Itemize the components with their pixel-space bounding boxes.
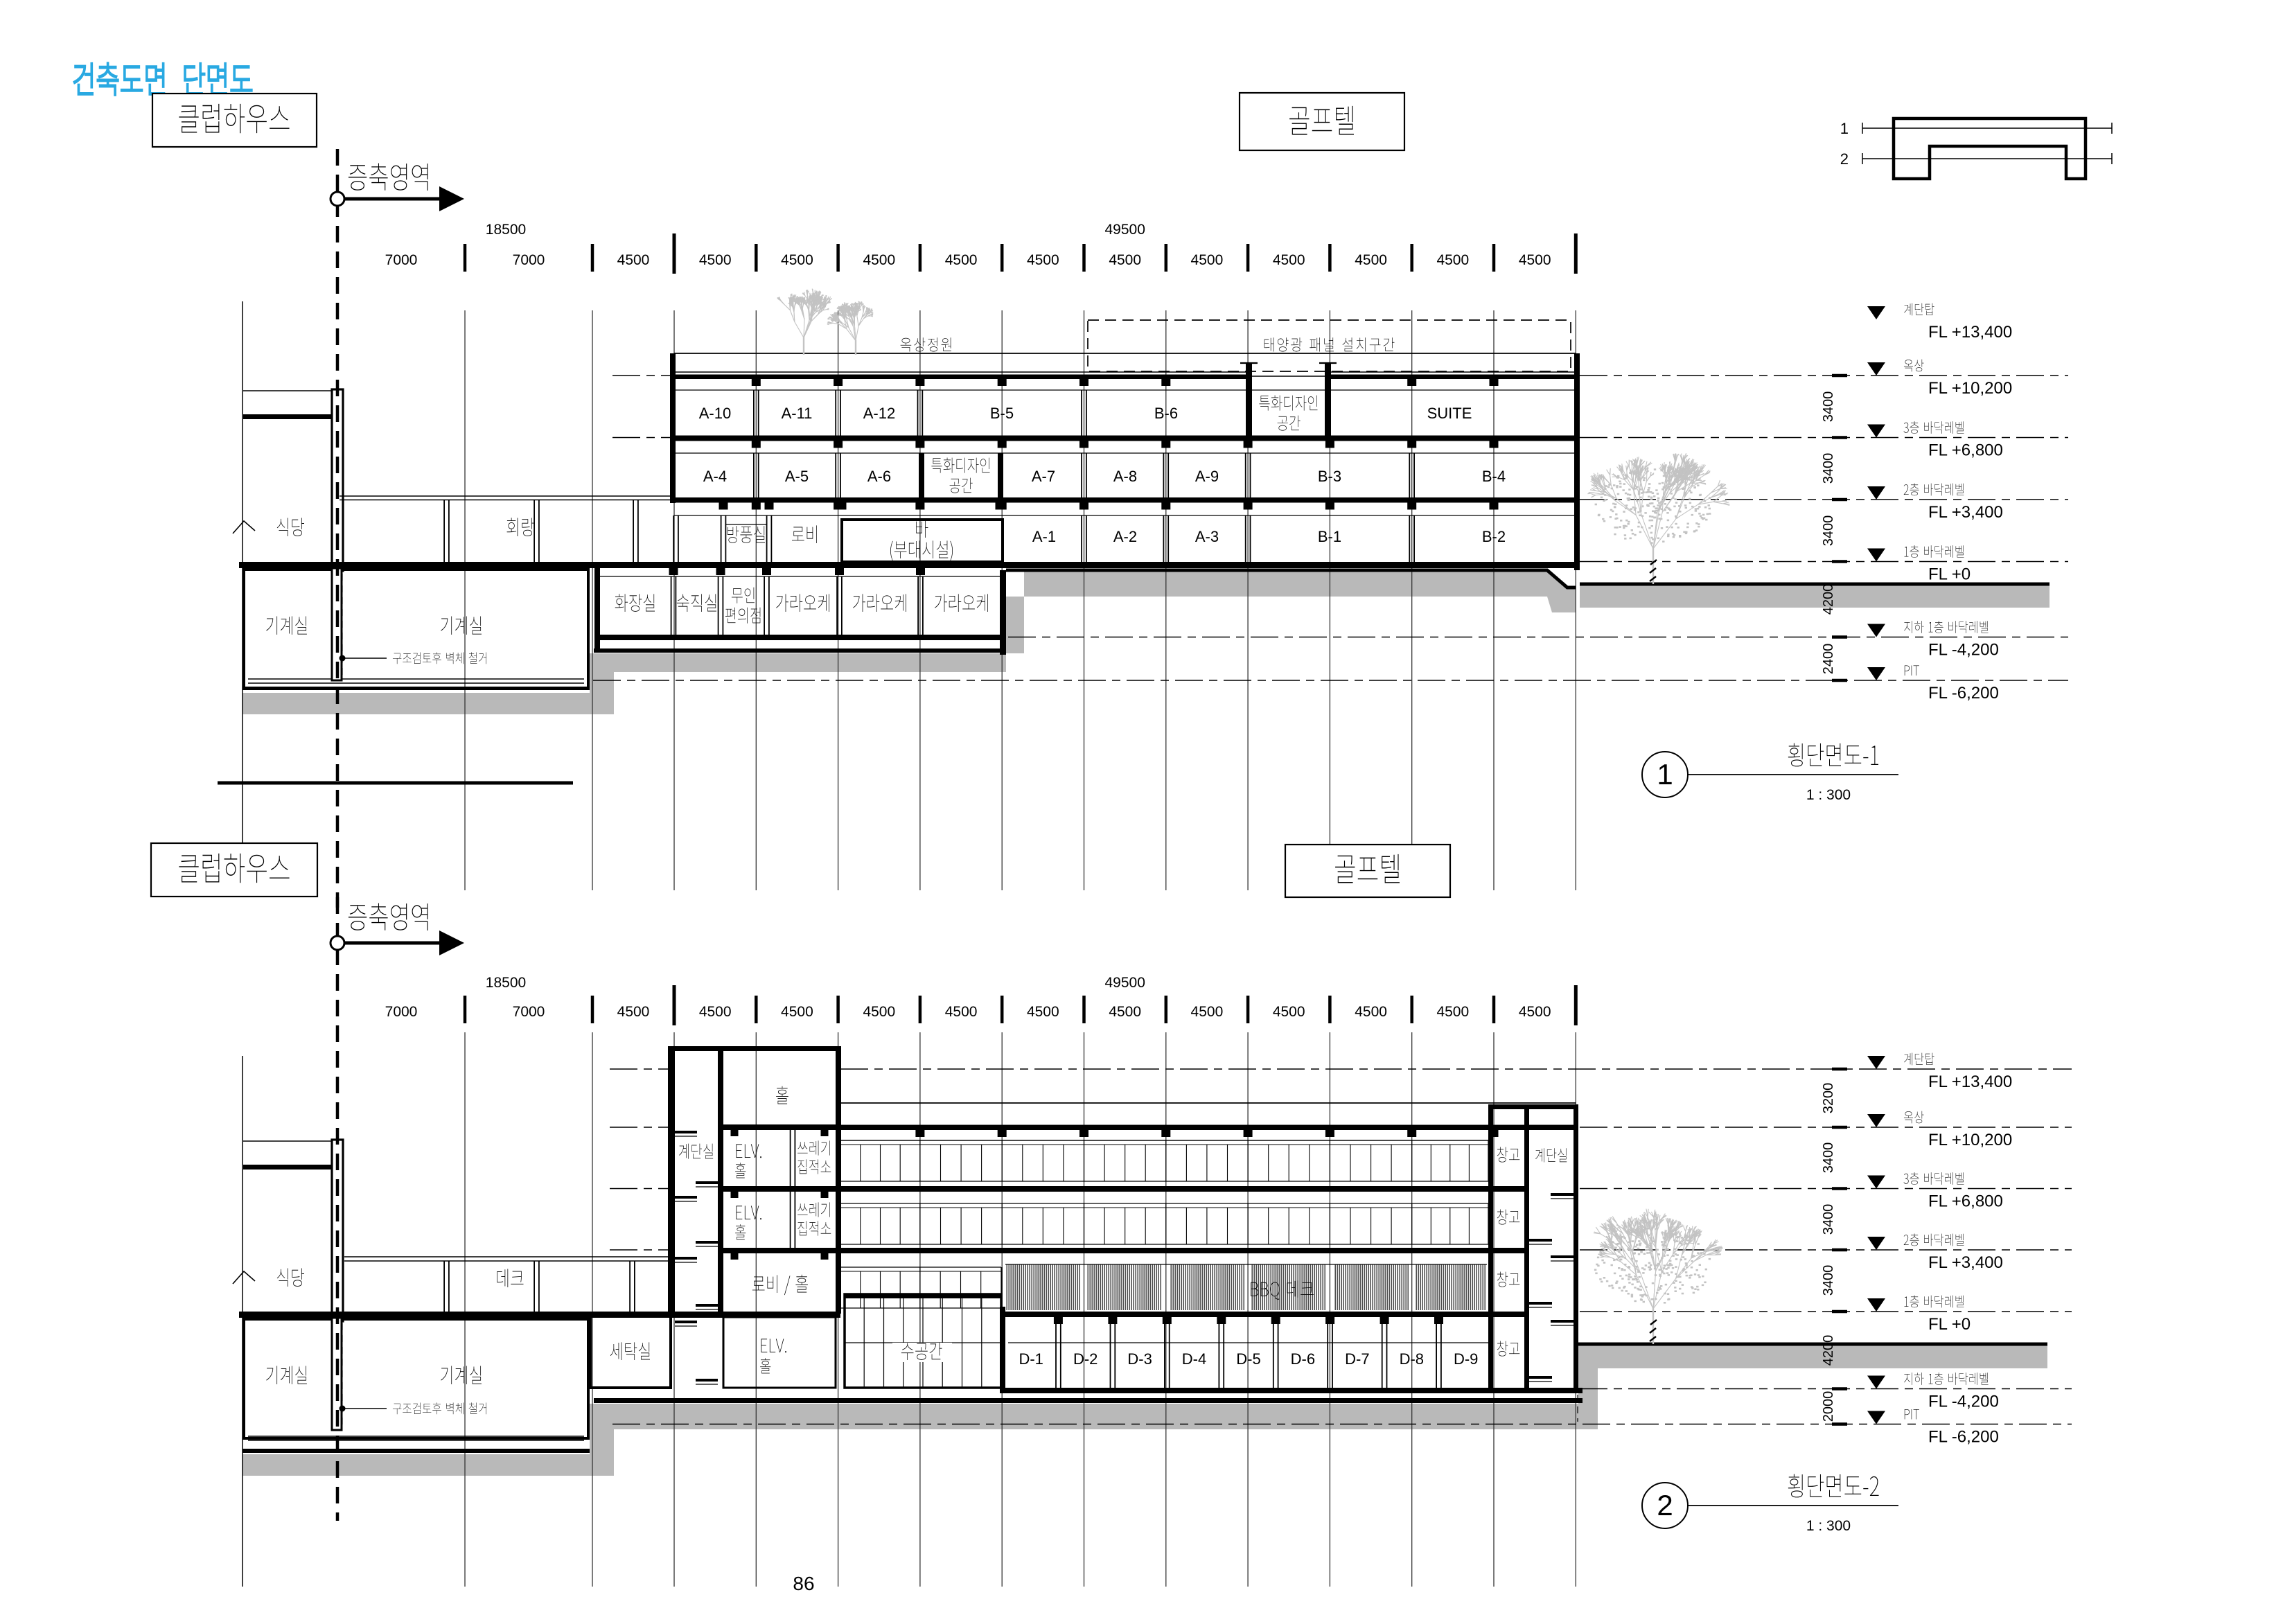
svg-text:FL -4,200: FL -4,200 [1928,1393,1999,1411]
svg-text:2000: 2000 [1821,1391,1836,1422]
svg-text:2: 2 [1657,1489,1673,1521]
svg-text:FL +0: FL +0 [1928,1315,1971,1334]
svg-text:4500: 4500 [699,1004,732,1020]
svg-text:FL -6,200: FL -6,200 [1928,684,1999,703]
svg-text:FL +6,800: FL +6,800 [1928,441,2003,460]
svg-text:4500: 4500 [1027,1004,1059,1020]
svg-text:B-5: B-5 [990,405,1014,422]
svg-text:7000: 7000 [513,1004,545,1020]
svg-text:4500: 4500 [1436,252,1469,268]
svg-text:1: 1 [1840,120,1849,137]
svg-text:A-11: A-11 [782,405,813,422]
svg-text:FL -6,200: FL -6,200 [1928,1428,1999,1447]
svg-text:B-2: B-2 [1482,528,1506,545]
svg-text:4500: 4500 [1519,252,1551,268]
svg-text:1: 1 [1657,758,1673,791]
svg-text:4500: 4500 [945,1004,978,1020]
svg-text:4200: 4200 [1821,1335,1836,1366]
svg-text:4500: 4500 [863,1004,895,1020]
svg-text:A-6: A-6 [867,468,891,485]
svg-text:A-2: A-2 [1113,528,1137,545]
svg-text:A-1: A-1 [1032,528,1056,545]
svg-text:4200: 4200 [1821,584,1836,615]
svg-text:4500: 4500 [1109,252,1141,268]
svg-text:A-12: A-12 [863,405,895,422]
svg-text:B-4: B-4 [1482,468,1506,485]
svg-text:4500: 4500 [1355,1004,1387,1020]
svg-text:7000: 7000 [513,252,545,268]
svg-text:4500: 4500 [617,1004,650,1020]
svg-text:4500: 4500 [1191,252,1224,268]
svg-text:7000: 7000 [385,1004,418,1020]
svg-text:FL +13,400: FL +13,400 [1928,1073,2012,1091]
svg-text:A-3: A-3 [1195,528,1219,545]
svg-text:4500: 4500 [1519,1004,1551,1020]
svg-text:D-4: D-4 [1182,1350,1206,1368]
svg-text:4500: 4500 [863,252,895,268]
svg-text:3400: 3400 [1821,453,1836,484]
svg-text:FL +6,800: FL +6,800 [1928,1192,2003,1211]
svg-text:FL +10,200: FL +10,200 [1928,379,2012,398]
svg-text:D-9: D-9 [1454,1350,1478,1368]
svg-text:3400: 3400 [1821,1204,1836,1235]
svg-text:4500: 4500 [617,252,650,268]
svg-text:B-1: B-1 [1318,528,1341,545]
svg-text:D-5: D-5 [1236,1350,1260,1368]
svg-text:4500: 4500 [781,252,813,268]
svg-text:49500: 49500 [1104,222,1145,238]
svg-text:3400: 3400 [1821,515,1836,547]
svg-text:18500: 18500 [486,975,526,991]
svg-text:FL -4,200: FL -4,200 [1928,641,1999,660]
svg-text:4500: 4500 [1355,252,1387,268]
svg-text:86: 86 [793,1573,814,1594]
svg-text:3400: 3400 [1821,1265,1836,1296]
svg-text:4500: 4500 [1273,1004,1305,1020]
svg-text:D-1: D-1 [1019,1350,1043,1368]
svg-text:D-3: D-3 [1127,1350,1152,1368]
svg-text:3400: 3400 [1821,1142,1836,1174]
svg-text:1 : 300: 1 : 300 [1806,1518,1851,1534]
svg-text:FL +3,400: FL +3,400 [1928,503,2003,522]
svg-text:4500: 4500 [1191,1004,1224,1020]
svg-text:4500: 4500 [781,1004,813,1020]
svg-text:SUITE: SUITE [1427,405,1472,422]
svg-text:FL +0: FL +0 [1928,565,1971,584]
svg-text:4500: 4500 [945,252,978,268]
svg-text:2: 2 [1840,150,1849,168]
svg-text:FL +3,400: FL +3,400 [1928,1253,2003,1272]
svg-text:4500: 4500 [1109,1004,1141,1020]
svg-text:FL +10,200: FL +10,200 [1928,1131,2012,1149]
svg-text:1 : 300: 1 : 300 [1806,787,1851,803]
svg-text:4500: 4500 [699,252,732,268]
svg-text:A-5: A-5 [785,468,809,485]
svg-text:49500: 49500 [1104,975,1145,991]
svg-text:4500: 4500 [1027,252,1059,268]
svg-text:D-6: D-6 [1291,1350,1315,1368]
svg-text:A-9: A-9 [1195,468,1219,485]
svg-text:A-4: A-4 [703,468,727,485]
svg-text:3400: 3400 [1821,391,1836,423]
svg-text:D-7: D-7 [1345,1350,1369,1368]
svg-text:A-8: A-8 [1113,468,1137,485]
svg-text:B-6: B-6 [1154,405,1178,422]
svg-text:D-2: D-2 [1073,1350,1097,1368]
svg-text:7000: 7000 [385,252,418,268]
svg-text:FL +13,400: FL +13,400 [1928,323,2012,342]
svg-text:4500: 4500 [1436,1004,1469,1020]
svg-text:18500: 18500 [486,222,526,238]
svg-text:A-7: A-7 [1032,468,1055,485]
svg-text:2400: 2400 [1821,644,1836,675]
svg-text:3200: 3200 [1821,1083,1836,1114]
svg-text:B-3: B-3 [1318,468,1341,485]
svg-text:A-10: A-10 [699,405,731,422]
svg-text:D-8: D-8 [1400,1350,1424,1368]
svg-text:4500: 4500 [1273,252,1305,268]
